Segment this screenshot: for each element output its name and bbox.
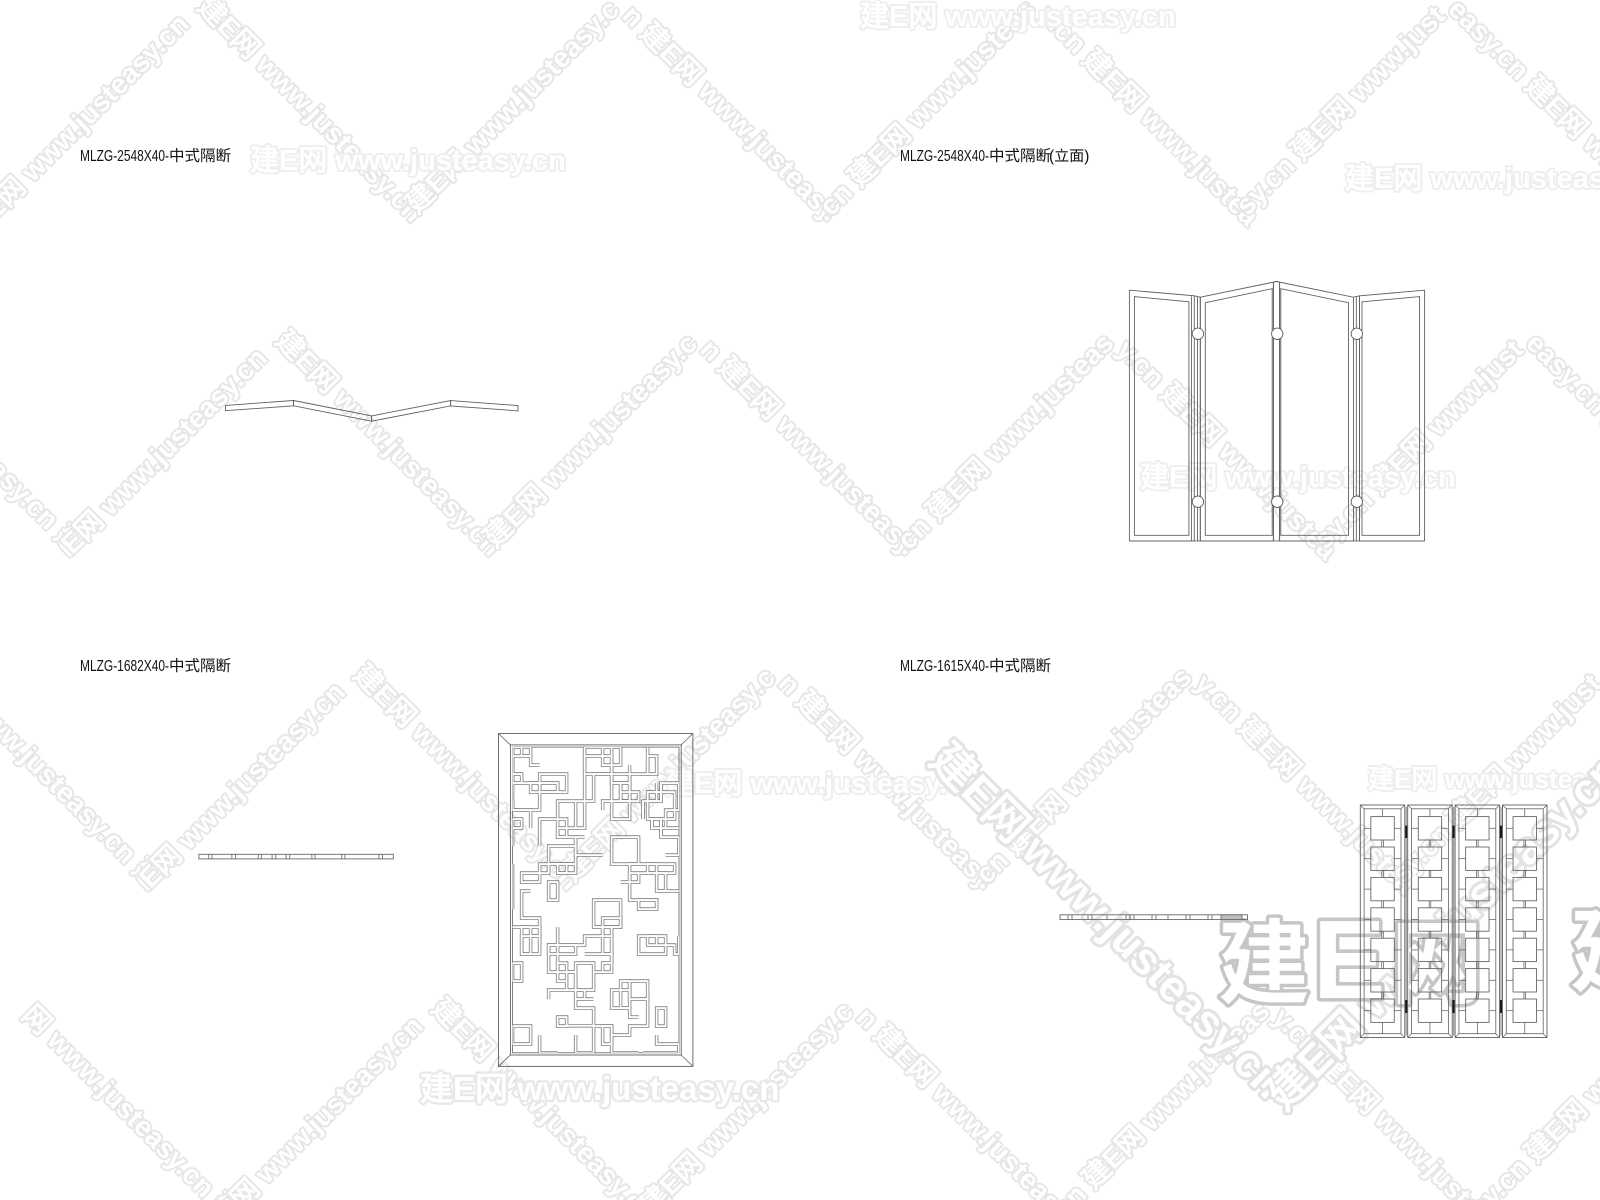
svg-text:建E网 www.justeasy.cn: 建E网 www.justeasy.cn: [250, 144, 566, 177]
svg-text:MLZG-1615X40-: MLZG-1615X40-: [900, 658, 989, 675]
svg-text:建E网 www.justeasy.cn: 建E网 www.justeasy.cn: [1345, 162, 1600, 195]
svg-text:E: E: [1313, 898, 1385, 1023]
svg-text:建E网 www.justeasy.cn: 建E网 www.justeasy.cn: [1140, 461, 1456, 494]
svg-text:MLZG-2548X40-: MLZG-2548X40-: [80, 148, 169, 165]
svg-text:建E网 www.justeasy.cn: 建E网 www.justeasy.cn: [420, 1070, 779, 1107]
svg-text:MLZG-2548X40-: MLZG-2548X40-: [900, 148, 989, 165]
svg-text:): ): [1084, 148, 1089, 165]
svg-text:建E网 www.justeasy.cn: 建E网 www.justeasy.cn: [860, 0, 1176, 33]
svg-text:MLZG-1682X40-: MLZG-1682X40-: [80, 658, 169, 675]
svg-text:(: (: [1049, 148, 1055, 165]
